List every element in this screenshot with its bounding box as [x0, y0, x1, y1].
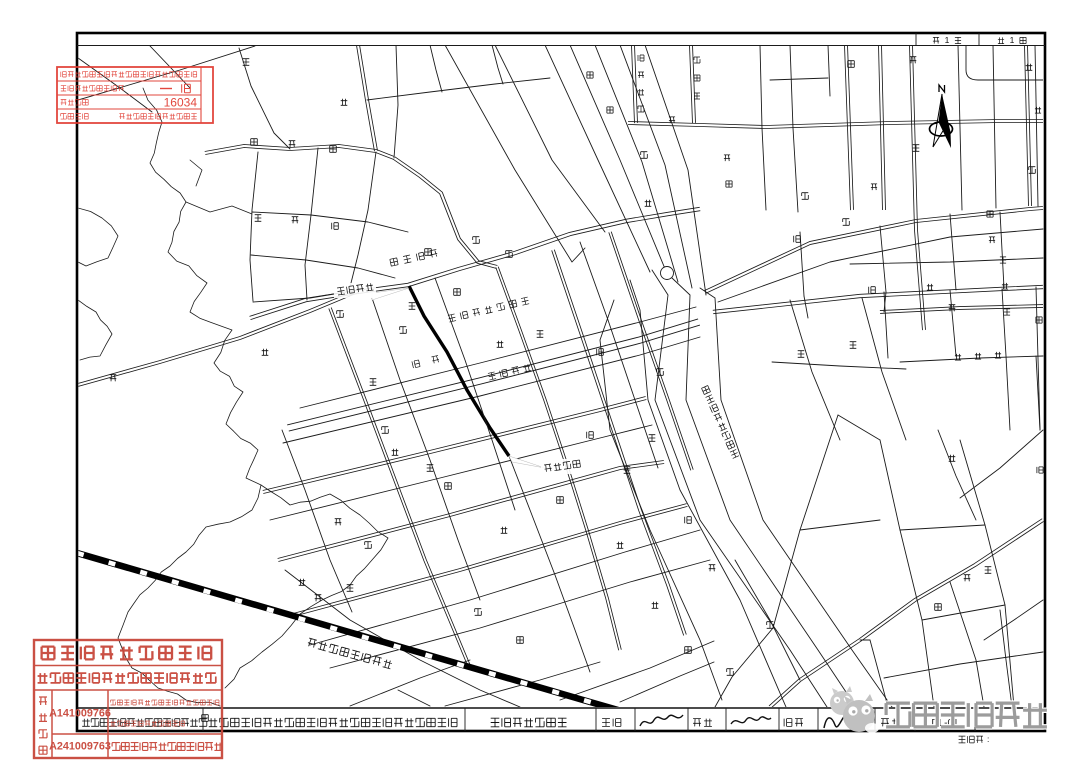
svg-text::: : — [987, 734, 989, 744]
svg-text:A241009763: A241009763 — [49, 741, 111, 753]
svg-text:1: 1 — [945, 35, 950, 45]
svg-text:1: 1 — [1010, 35, 1015, 45]
svg-text:16034: 16034 — [164, 96, 198, 110]
svg-text:A141009766: A141009766 — [49, 708, 111, 720]
